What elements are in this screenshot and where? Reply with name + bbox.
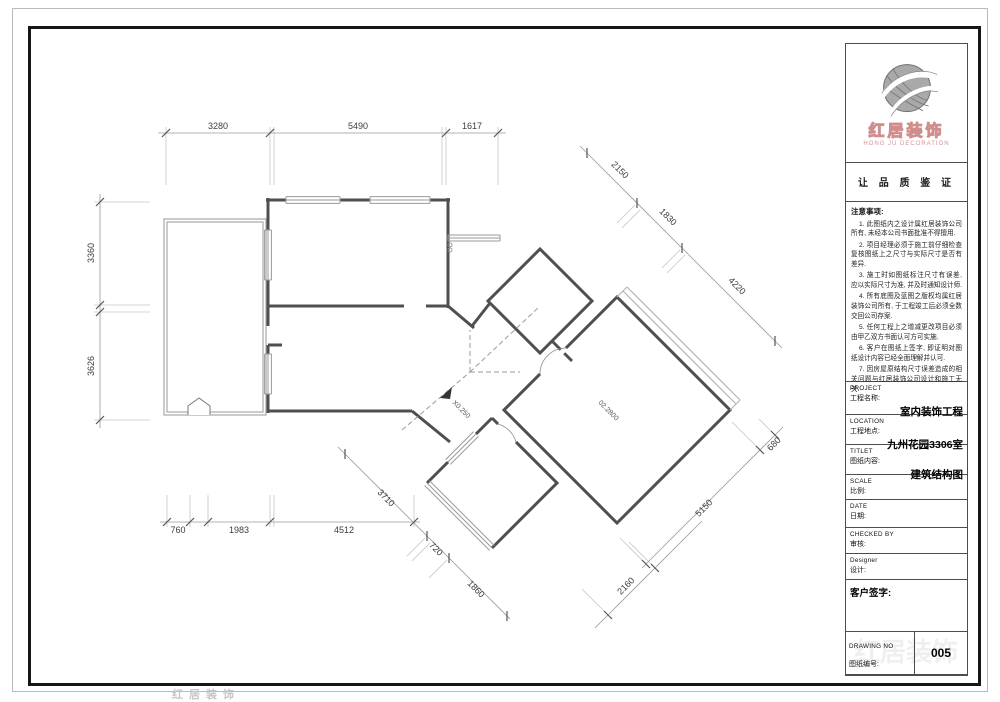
dim-label: 3280 xyxy=(208,121,228,131)
dim-label: 1617 xyxy=(462,121,482,131)
title-block-section-scale: SCALE 比例: xyxy=(846,475,967,500)
company-name-cn: 红居装饰 xyxy=(868,123,944,141)
checked-label-cn: 审核: xyxy=(850,539,963,549)
title-block-section-location: LOCATION 工程地点: 九州花园3306室 xyxy=(846,415,967,445)
dim-label: 1860 xyxy=(466,578,487,599)
note-item: 3. 施工时如图纸标注尺寸有误差, 应以实际尺寸为准, 并及时通知设计师. xyxy=(851,271,962,291)
client-signature-cell: 客户签字: xyxy=(846,580,967,632)
dim-label: 4220 xyxy=(727,275,748,296)
dim-label: 1983 xyxy=(229,525,249,535)
scale-label-en: SCALE xyxy=(850,478,963,485)
windows xyxy=(265,197,500,394)
dim-label: 3626 xyxy=(86,356,96,376)
company-name-en: HONG JU DECORATION xyxy=(863,141,949,147)
dim-label: 760 xyxy=(170,525,185,535)
scale-label-cn: 比例: xyxy=(850,486,963,496)
note-item: 5. 任何工程上之增减更改项目必须由甲乙双方书面认可方可实施. xyxy=(851,323,962,343)
dim-label: 680 xyxy=(765,435,783,453)
titlet-label-cn: 图纸内容: xyxy=(850,456,963,466)
dim-label: 5490 xyxy=(348,121,368,131)
dim-label: 4512 xyxy=(334,525,354,535)
location-label-cn: 工程地点: xyxy=(850,426,963,436)
title-block-section-designer: Designer 设计: xyxy=(846,554,967,580)
checked-label-en: CHECKED BY xyxy=(850,531,963,538)
note-item: 2. 项目经理必须于施工前仔细检查复核图纸上之尺寸与实际尺寸是否有差异. xyxy=(851,241,962,270)
elevation-label: X0.250 xyxy=(451,399,472,420)
balcony-door-mark xyxy=(188,398,210,415)
date-label-en: DATE xyxy=(850,503,963,510)
title-block-section-date: DATE 日期: xyxy=(846,500,967,528)
balcony-left xyxy=(164,219,266,415)
title-block-section-checked: CHECKED BY 审核: xyxy=(846,528,967,553)
date-label-cn: 日期: xyxy=(850,511,963,521)
dim-label: 2160 xyxy=(615,575,636,596)
dim-label: 2150 xyxy=(610,159,631,180)
notes-section: 注意事项: 1. 此图纸内之设计属红居装饰公司所有, 未经本公司书面批准不得擅用… xyxy=(846,202,967,382)
notes-title: 注意事项: xyxy=(851,206,962,217)
title-block: 红居装饰 HONG JU DECORATION 让 品 质 鉴 证 注意事项: … xyxy=(845,43,968,676)
titlet-label-en: TITLET xyxy=(850,448,963,455)
note-item: 6. 客户在图纸上签字, 即证明对图纸设计内容已经全面理解并认可. xyxy=(851,344,962,364)
room-fills xyxy=(427,249,730,548)
title-block-section-project: PROJECT 工程名称: 室内装饰工程 xyxy=(846,382,967,415)
dim-label: 1830 xyxy=(658,206,679,227)
elevation-arrow xyxy=(440,387,452,399)
designer-label-cn: 设计: xyxy=(850,565,963,575)
project-label-en: PROJECT xyxy=(850,385,963,392)
dim-label: 5150 xyxy=(693,497,714,518)
company-logo-globe xyxy=(874,59,940,121)
designer-label-en: Designer xyxy=(850,557,963,564)
dim-label: 3710 xyxy=(376,487,397,508)
dim-label: 3360 xyxy=(86,243,96,263)
note-item: 1. 此图纸内之设计属红居装饰公司所有, 未经本公司书面批准不得擅用. xyxy=(851,220,962,240)
location-label-en: LOCATION xyxy=(850,418,963,425)
dim-label: 720 xyxy=(427,540,445,558)
project-label-cn: 工程名称: xyxy=(850,393,963,403)
company-slogan: 让 品 质 鉴 证 xyxy=(846,163,967,202)
note-item: 4. 所有底图及蓝图之版权均属红居装饰公司所有, 于工程竣工后必须全数交回公司存… xyxy=(851,292,962,321)
watermark-faint: 红居装饰 xyxy=(854,632,958,669)
title-block-logo-section: 红居装饰 HONG JU DECORATION xyxy=(846,44,967,163)
title-block-section-title: TITLET 图纸内容: 建筑结构图 xyxy=(846,445,967,475)
